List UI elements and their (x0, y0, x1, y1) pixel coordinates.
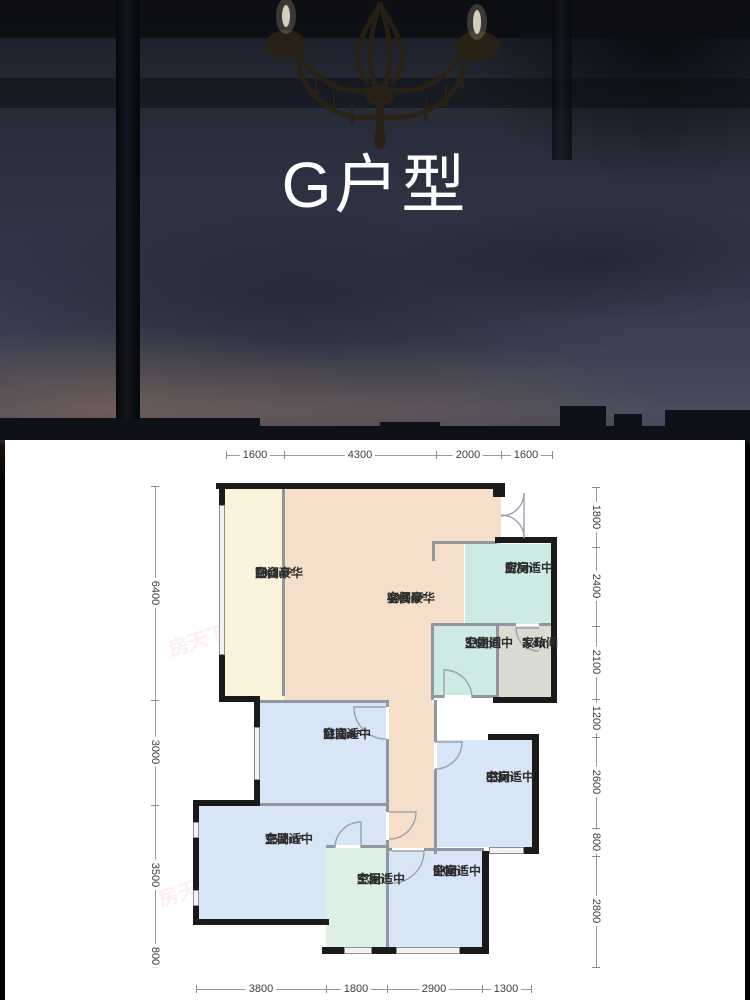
wall (495, 537, 557, 543)
dim-line-left (155, 486, 156, 967)
wall (389, 848, 392, 851)
window (193, 890, 199, 906)
wall (432, 695, 444, 698)
dim-label: 6400 (149, 578, 161, 608)
wall (532, 734, 539, 854)
dim-label: 1600 (240, 449, 270, 461)
wall (434, 700, 437, 740)
window (219, 505, 225, 655)
dim-line-top (226, 455, 552, 456)
room-living (284, 487, 501, 544)
wall (386, 806, 389, 812)
wall (282, 487, 285, 696)
dim-label: 3000 (149, 737, 161, 767)
dim-label: 4300 (345, 449, 375, 461)
room-hallway (389, 703, 434, 848)
dim-label: 2800 (590, 896, 602, 926)
wall (257, 803, 389, 806)
dim-label: 1800 (590, 502, 602, 532)
wall (431, 623, 434, 700)
wall (372, 947, 396, 954)
dim-label: 2000 (453, 449, 483, 461)
dim-label: 800 (590, 830, 602, 854)
window (396, 947, 460, 954)
room-balcony (225, 487, 284, 700)
wall (432, 541, 435, 561)
wall (386, 739, 389, 806)
wall (434, 769, 437, 854)
dim-label: 1200 (590, 703, 602, 733)
room-living (284, 626, 432, 703)
wall (482, 851, 489, 954)
wall (193, 919, 329, 925)
wall (322, 947, 344, 954)
room-master-vestibule (326, 806, 386, 845)
wall (386, 700, 389, 707)
window (344, 947, 372, 954)
wall (432, 623, 516, 626)
wall (193, 800, 199, 925)
wall (193, 800, 260, 806)
wall (216, 483, 501, 489)
room-bedroomA (260, 703, 386, 803)
dim-label: 1600 (511, 449, 541, 461)
room-kitchen (465, 544, 551, 624)
city-skyline (0, 404, 750, 440)
wall (493, 697, 557, 703)
wall (326, 845, 335, 848)
dim-label: 800 (149, 944, 161, 968)
window (489, 847, 524, 854)
room-master-bath (326, 848, 386, 947)
dim-label: 2600 (590, 767, 602, 797)
room-living (284, 544, 464, 626)
dim-label: 1300 (491, 983, 521, 995)
dim-label: 3800 (246, 983, 276, 995)
room-study (437, 740, 532, 847)
wall (386, 848, 389, 949)
dim-label: 2100 (590, 647, 602, 677)
wall (257, 700, 389, 703)
dim-label: 3500 (149, 860, 161, 890)
wall (493, 483, 505, 497)
window (193, 822, 199, 838)
page-title: G户型 (0, 134, 750, 226)
wall (361, 845, 388, 848)
dim-label: 2400 (590, 571, 602, 601)
wall (424, 848, 484, 851)
room-master (199, 806, 326, 919)
wall (488, 734, 538, 740)
dim-label: 1800 (341, 983, 371, 995)
dim-label: 2900 (419, 983, 449, 995)
wall (432, 541, 497, 544)
window (254, 727, 260, 780)
floorplan-card: 房天下 fang.com 房天下 fang.com (5, 440, 745, 1000)
